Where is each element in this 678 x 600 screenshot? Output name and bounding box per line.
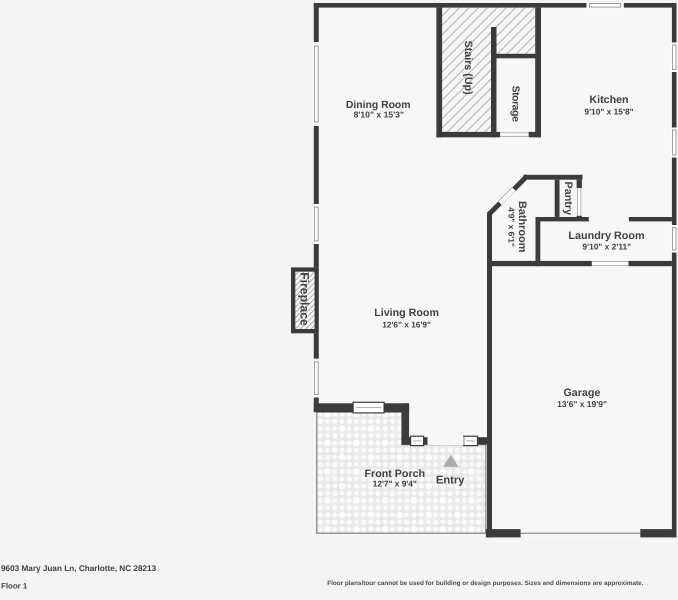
svg-text:Floor plans/tour cannot be use: Floor plans/tour cannot be used for buil…	[327, 580, 643, 587]
svg-text:8'10" x 15'3": 8'10" x 15'3"	[354, 110, 404, 120]
svg-text:9603 Mary Juan Ln, Charlotte,: 9603 Mary Juan Ln, Charlotte, NC 28213	[1, 564, 157, 573]
svg-text:Garage: Garage	[563, 387, 600, 399]
svg-text:12'7" x 9'4": 12'7" x 9'4"	[373, 479, 417, 489]
svg-text:Floor 1: Floor 1	[1, 581, 28, 590]
svg-text:4'9" x 6'1": 4'9" x 6'1"	[506, 207, 516, 247]
svg-text:13'6" x 19'9": 13'6" x 19'9"	[557, 399, 607, 409]
svg-text:9'10" x 15'8": 9'10" x 15'8"	[584, 107, 633, 117]
svg-text:Pantry: Pantry	[562, 181, 574, 215]
svg-text:Bathroom: Bathroom	[516, 201, 528, 253]
svg-text:Laundry Room: Laundry Room	[568, 230, 644, 242]
svg-text:Storage: Storage	[510, 86, 521, 123]
svg-text:9'10" x 2'11": 9'10" x 2'11"	[582, 242, 631, 252]
svg-text:Fireplace: Fireplace	[297, 272, 311, 326]
svg-text:Living Room: Living Room	[374, 307, 439, 319]
svg-text:12'6" x 16'9": 12'6" x 16'9"	[382, 319, 431, 329]
svg-text:Stairs (Up): Stairs (Up)	[462, 41, 474, 95]
svg-text:Kitchen: Kitchen	[589, 94, 628, 106]
svg-text:Entry: Entry	[436, 475, 465, 487]
